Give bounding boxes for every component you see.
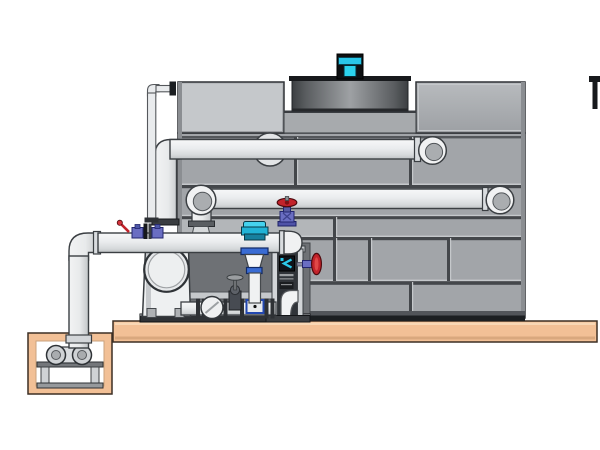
pit-downpipe [69,256,89,348]
controller-display [280,256,295,271]
scene-svg [0,0,600,450]
foundation-slab [113,321,597,342]
inline-valve [227,275,243,310]
fan-motor [337,54,363,79]
top-right-panel [416,82,525,133]
fan-cowl [289,76,411,111]
cyan-filter-cap [242,222,269,241]
sight-gauge [201,297,223,319]
fan-deck [284,111,416,133]
red-globe-valve [277,197,297,227]
manifold-end-cap [284,231,302,254]
standpipe-wall-flange [170,82,177,96]
equipment-illustration [0,0,600,450]
